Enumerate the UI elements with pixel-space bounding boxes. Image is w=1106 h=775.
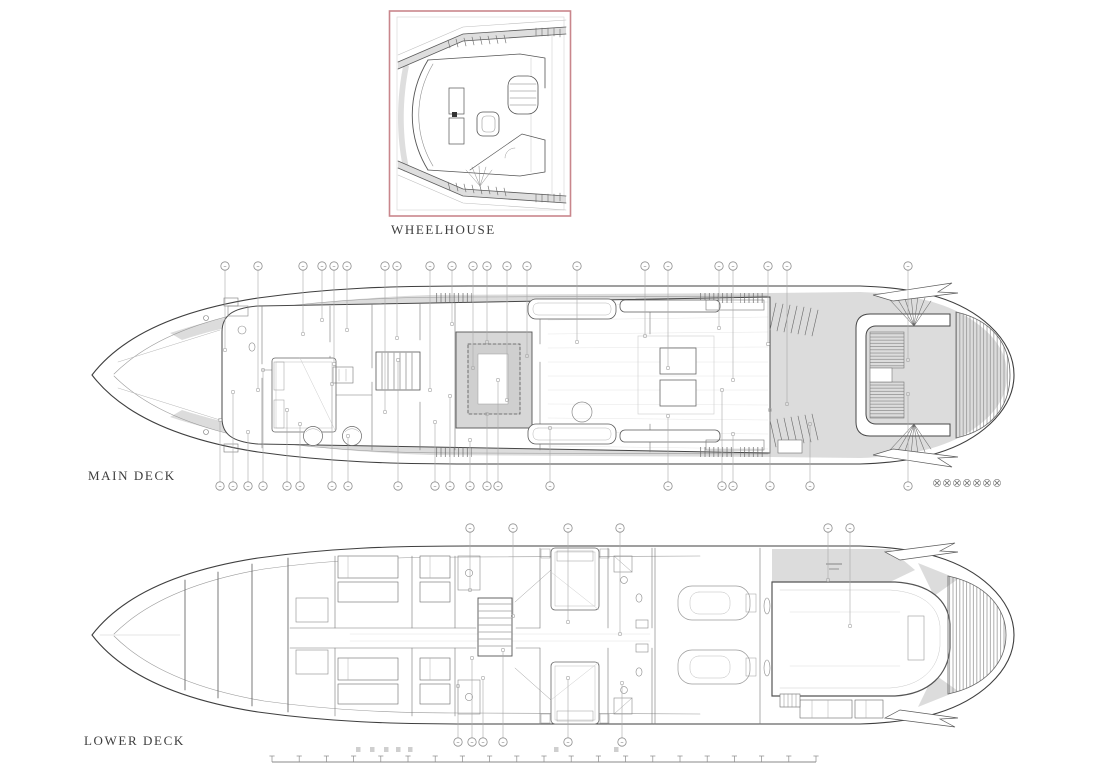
lower-stairs <box>478 598 512 656</box>
master-bed <box>272 358 336 432</box>
tender-garage <box>764 582 950 696</box>
wheelhouse-label: WHEELHOUSE <box>391 222 496 238</box>
wheelhouse-stairs <box>508 76 538 114</box>
crew-bunks <box>338 556 450 704</box>
stern-wing-top <box>873 283 958 301</box>
swim-platform-main <box>956 312 1010 438</box>
wheelhouse-figure <box>0 0 1106 250</box>
main-deck-label: MAIN DECK <box>88 468 176 484</box>
main-deck-figure <box>0 250 1106 505</box>
transom-step-bottom <box>885 710 958 727</box>
galley <box>456 332 532 428</box>
transom-step-top <box>885 543 958 560</box>
engine-room <box>678 586 756 684</box>
forepeak-bulkheads <box>185 558 288 712</box>
wheelhouse-drawing <box>390 11 571 216</box>
lower-deck-label: LOWER DECK <box>84 733 185 749</box>
stern-wing-bottom <box>873 449 958 467</box>
crew-cabin-walls <box>335 548 760 724</box>
guest-beds <box>541 548 609 724</box>
scale-bar-ticks <box>269 747 818 762</box>
helm-chair <box>477 112 499 136</box>
guest-baths <box>614 556 648 714</box>
lower-deck-drawing <box>92 543 1014 727</box>
callout-group-x-markers <box>933 479 1000 486</box>
aft-lockers <box>780 694 883 718</box>
crew-baths <box>458 556 480 714</box>
main-deck-drawing <box>92 283 1014 467</box>
